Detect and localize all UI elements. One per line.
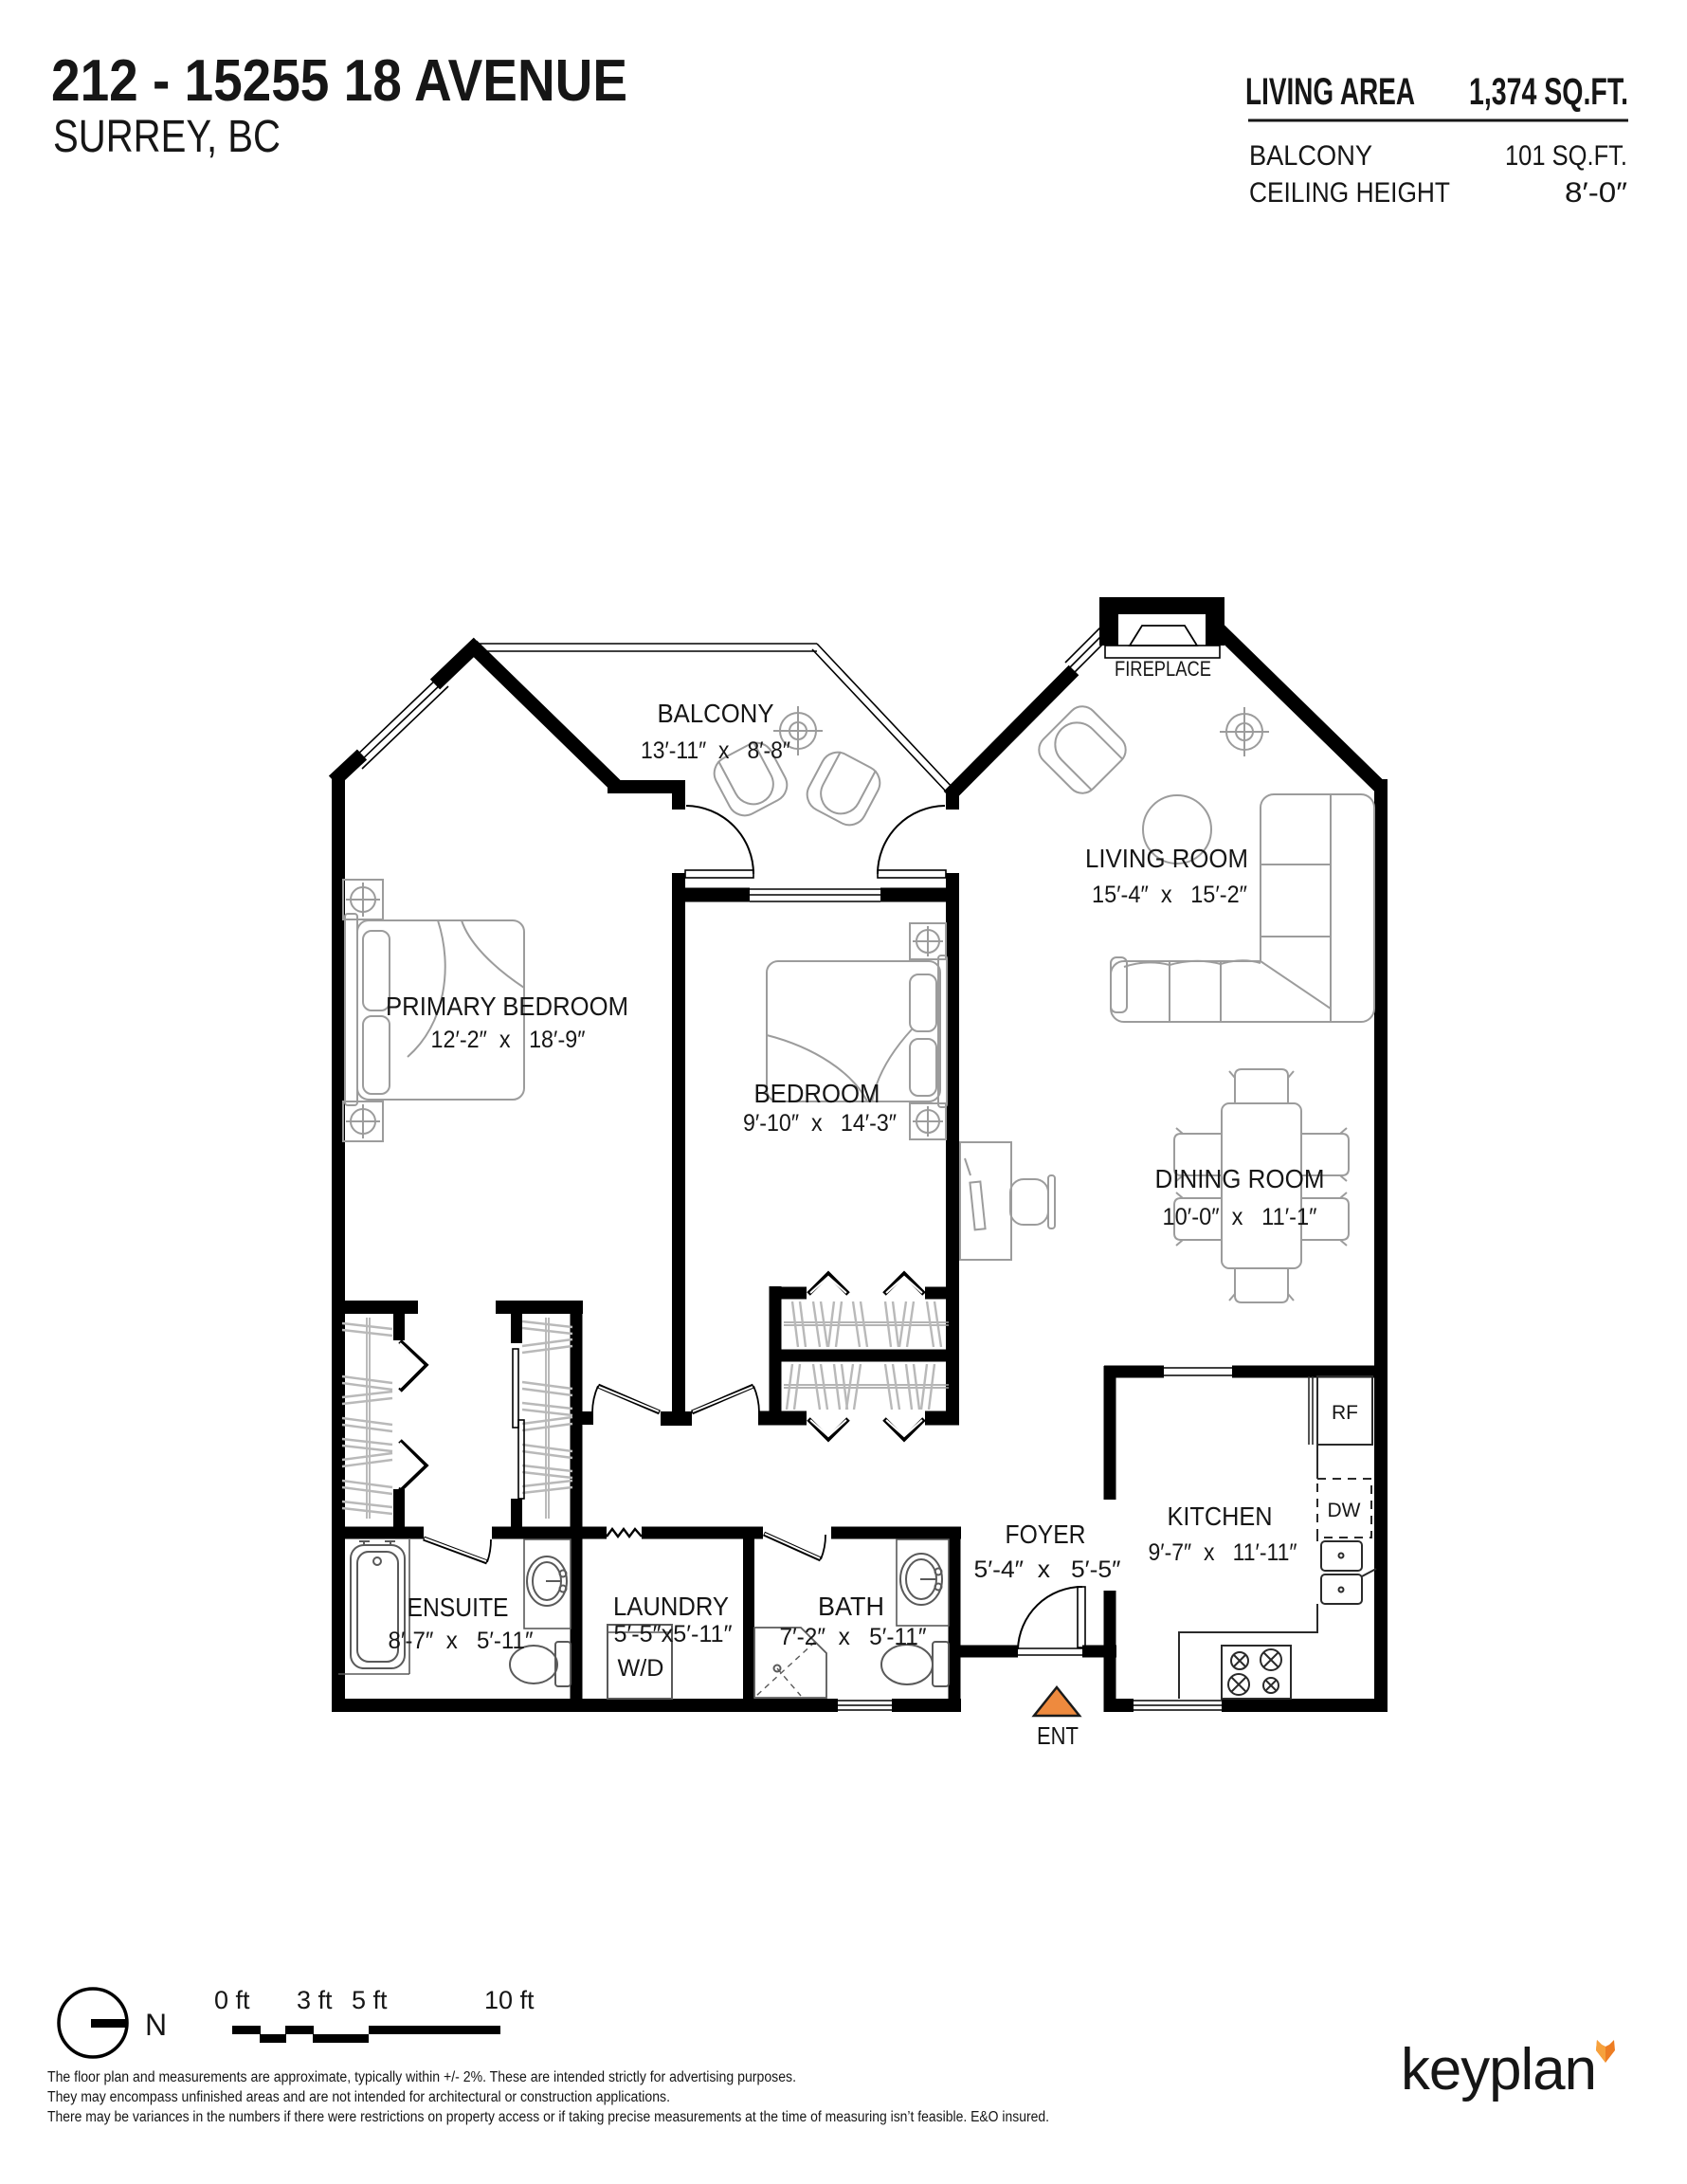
svg-text:3 ft: 3 ft: [297, 1986, 333, 2014]
svg-text:RF: RF: [1332, 1402, 1358, 1424]
svg-text:BATH: BATH: [818, 1592, 884, 1621]
svg-text:FIREPLACE: FIREPLACE: [1115, 657, 1211, 681]
svg-text:CEILING HEIGHT: CEILING HEIGHT: [1249, 177, 1450, 209]
svg-text:LIVING ROOM: LIVING ROOM: [1085, 844, 1248, 873]
svg-text:9′-7″ x 11′-11″: 9′-7″ x 11′-11″: [1149, 1539, 1297, 1566]
svg-text:BALCONY: BALCONY: [658, 699, 774, 728]
svg-text:SURREY, BC: SURREY, BC: [53, 112, 281, 162]
svg-text:FOYER: FOYER: [1006, 1520, 1086, 1549]
svg-text:9′-10″ x 14′-3″: 9′-10″ x 14′-3″: [743, 1110, 897, 1137]
svg-text:W/D: W/D: [618, 1655, 664, 1682]
svg-text:5′-4″ x 5′-5″: 5′-4″ x 5′-5″: [974, 1556, 1121, 1583]
svg-text:The floor plan and measurement: The floor plan and measurements are appr…: [47, 2069, 796, 2085]
svg-text:N: N: [145, 2008, 167, 2042]
svg-text:They may encompass unfinished: They may encompass unfinished areas and …: [47, 2089, 670, 2105]
svg-text:8′-0″: 8′-0″: [1565, 177, 1627, 209]
svg-text:101 SQ.FT.: 101 SQ.FT.: [1505, 140, 1627, 172]
svg-text:5′-5″x5′-11″: 5′-5″x5′-11″: [614, 1621, 733, 1647]
svg-text:ENSUITE: ENSUITE: [408, 1592, 509, 1622]
svg-text:0 ft: 0 ft: [214, 1986, 250, 2014]
svg-text:15′-4″ x 15′-2″: 15′-4″ x 15′-2″: [1092, 882, 1247, 908]
svg-text:LAUNDRY: LAUNDRY: [613, 1592, 729, 1621]
svg-text:13′-11″ x 8′-8″: 13′-11″ x 8′-8″: [641, 737, 790, 764]
svg-text:There may be variances in the: There may be variances in the numbers if…: [47, 2109, 1049, 2125]
svg-text:DW: DW: [1328, 1500, 1361, 1521]
svg-text:LIVING AREA: LIVING AREA: [1245, 71, 1415, 113]
svg-text:5 ft: 5 ft: [352, 1986, 388, 2014]
svg-text:7′-2″ x 5′-11″: 7′-2″ x 5′-11″: [780, 1624, 927, 1650]
svg-text:ENT: ENT: [1037, 1721, 1079, 1750]
svg-text:8′-7″ x 5′-11″: 8′-7″ x 5′-11″: [389, 1628, 534, 1654]
svg-text:10′-0″ x 11′-1″: 10′-0″ x 11′-1″: [1163, 1204, 1317, 1230]
svg-text:DINING ROOM: DINING ROOM: [1155, 1164, 1325, 1193]
svg-text:1,374 SQ.FT.: 1,374 SQ.FT.: [1469, 71, 1628, 113]
svg-text:212 - 15255 18 AVENUE: 212 - 15255 18 AVENUE: [51, 48, 627, 114]
svg-text:BALCONY: BALCONY: [1249, 140, 1372, 172]
svg-text:PRIMARY BEDROOM: PRIMARY BEDROOM: [386, 992, 628, 1021]
svg-text:KITCHEN: KITCHEN: [1168, 1501, 1273, 1531]
svg-text:12′-2″ x 18′-9″: 12′-2″ x 18′-9″: [431, 1027, 586, 1053]
svg-text:keyplan: keyplan: [1401, 2037, 1596, 2102]
svg-text:10 ft: 10 ft: [484, 1986, 535, 2014]
svg-text:BEDROOM: BEDROOM: [754, 1079, 880, 1108]
